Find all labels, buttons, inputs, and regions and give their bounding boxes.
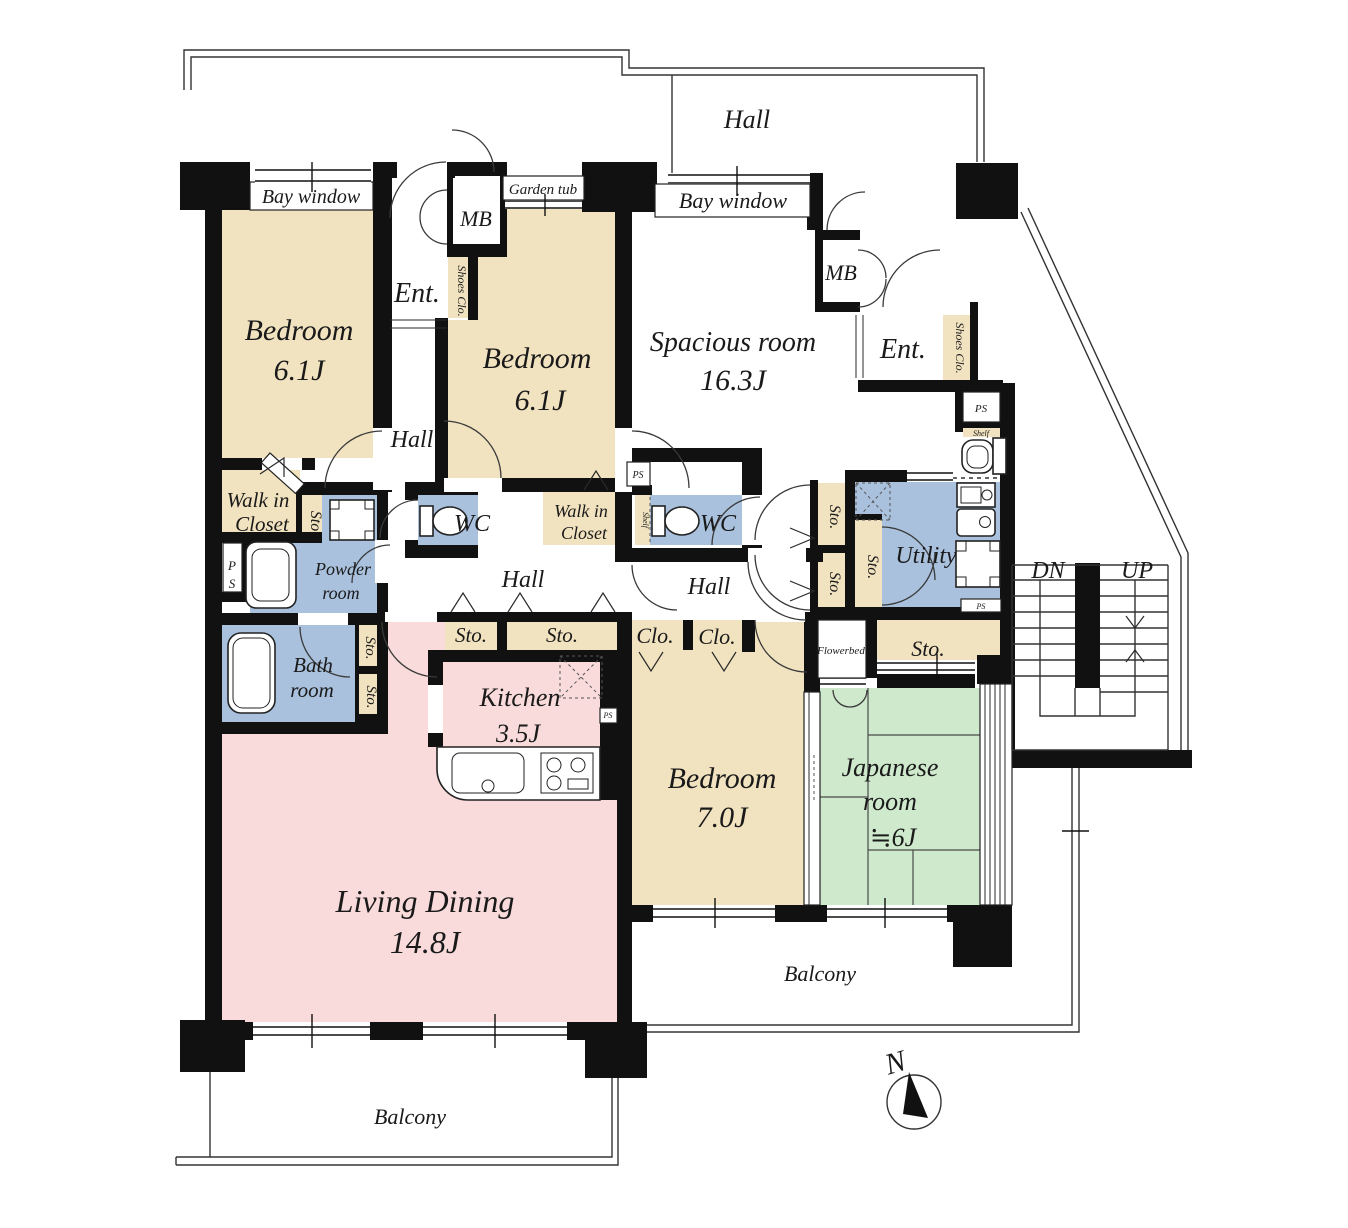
label-ps-kitchen: PS	[603, 711, 613, 720]
label-mb-right: MB	[824, 260, 857, 285]
label-ps-left-p: P	[227, 558, 236, 573]
bathtub	[228, 633, 275, 713]
compass-north-label: N	[880, 1044, 911, 1082]
label-living-size: 14.8J	[390, 924, 462, 960]
label-sto-bath-1: Sto.	[362, 637, 378, 660]
label-bedroom-c-size: 7.0J	[697, 801, 750, 834]
label-hall-top: Hall	[723, 105, 770, 134]
label-sto-utility-2: Sto.	[826, 572, 843, 596]
label-sto-right: Sto.	[911, 636, 945, 661]
label-bath-1: Bath	[293, 653, 333, 677]
floorplan-svg: Hall Bay window Garden tub Bay window MB…	[0, 0, 1348, 1228]
label-garden-tub: Garden tub	[509, 182, 578, 198]
label-ps-utility: PS	[976, 602, 986, 611]
label-ent-right: Ent.	[879, 334, 926, 365]
compass: N	[880, 1044, 941, 1129]
label-wc-left: WC	[454, 511, 491, 537]
label-walkin-left-2: Closet	[235, 512, 290, 536]
label-sto-utility-3: Sto.	[864, 555, 881, 579]
label-kitchen: Kitchen	[479, 683, 561, 712]
label-ent-left: Ent.	[393, 278, 440, 309]
label-powder-1: Powder	[314, 559, 372, 579]
label-walkin-right-2: Closet	[561, 523, 608, 543]
label-utility: Utility	[895, 543, 957, 569]
label-sto-bath-2: Sto.	[363, 686, 379, 709]
label-japanese-2: room	[863, 787, 917, 816]
label-mb-left: MB	[459, 206, 492, 231]
label-ps-right-top: PS	[974, 403, 988, 415]
label-japanese-size: ≒6J	[870, 823, 918, 852]
washer-pan-powder	[330, 500, 374, 540]
label-living: Living Dining	[335, 883, 515, 919]
label-up: UP	[1121, 558, 1153, 584]
label-sto-box-1: Sto.	[455, 623, 487, 647]
label-dn: DN	[1030, 558, 1066, 584]
label-balcony-left: Balcony	[374, 1104, 446, 1129]
label-flowerbed: Flowerbed	[816, 645, 865, 657]
label-spacious: Spacious room	[650, 327, 816, 358]
label-ps-left-s: S	[229, 576, 236, 591]
label-sto-utility-1: Sto.	[826, 505, 843, 529]
label-ps-mid: PS	[631, 470, 643, 481]
toilet-wc-right	[652, 506, 699, 536]
label-sto-strip-left: Sto.	[307, 511, 324, 535]
label-hall-right: Hall	[687, 574, 731, 600]
label-shelf-wc: Shelf	[641, 512, 650, 530]
label-bay-window-right: Bay window	[679, 188, 787, 213]
sliding-door	[804, 692, 820, 905]
label-shoes-clo-left: Shoes Clo.	[455, 265, 469, 316]
label-clo-1: Clo.	[636, 623, 673, 648]
label-bath-2: room	[290, 678, 334, 702]
label-bedroom-b-size: 6.1J	[515, 384, 568, 417]
label-clo-2: Clo.	[698, 624, 735, 649]
toilet-entry-right	[962, 438, 1006, 474]
label-balcony-right: Balcony	[784, 961, 856, 986]
label-bedroom-c: Bedroom	[668, 762, 777, 795]
label-bedroom-b: Bedroom	[483, 342, 592, 375]
label-shoes-clo-right: Shoes Clo.	[953, 322, 967, 373]
label-kitchen-size: 3.5J	[495, 719, 542, 748]
label-bay-window-left: Bay window	[262, 186, 361, 208]
label-powder-2: room	[322, 583, 359, 603]
label-walkin-left-1: Walk in	[227, 488, 290, 512]
label-hall-left: Hall	[501, 567, 545, 593]
label-wc-right: WC	[700, 511, 737, 537]
label-japanese-1: Japanese	[842, 753, 939, 782]
label-bedroom-a-size: 6.1J	[274, 354, 327, 387]
compass-needle	[903, 1072, 928, 1118]
label-bedroom-a: Bedroom	[245, 314, 354, 347]
kitchen-counter	[437, 747, 600, 800]
label-sto-box-2: Sto.	[546, 623, 578, 647]
label-hall-vert: Hall	[390, 427, 434, 453]
label-spacious-size: 16.3J	[700, 364, 768, 397]
label-walkin-right-1: Walk in	[554, 501, 608, 521]
label-shelf-right: Shelf	[973, 429, 991, 438]
floorplan-page: Hall Bay window Garden tub Bay window MB…	[0, 0, 1348, 1228]
